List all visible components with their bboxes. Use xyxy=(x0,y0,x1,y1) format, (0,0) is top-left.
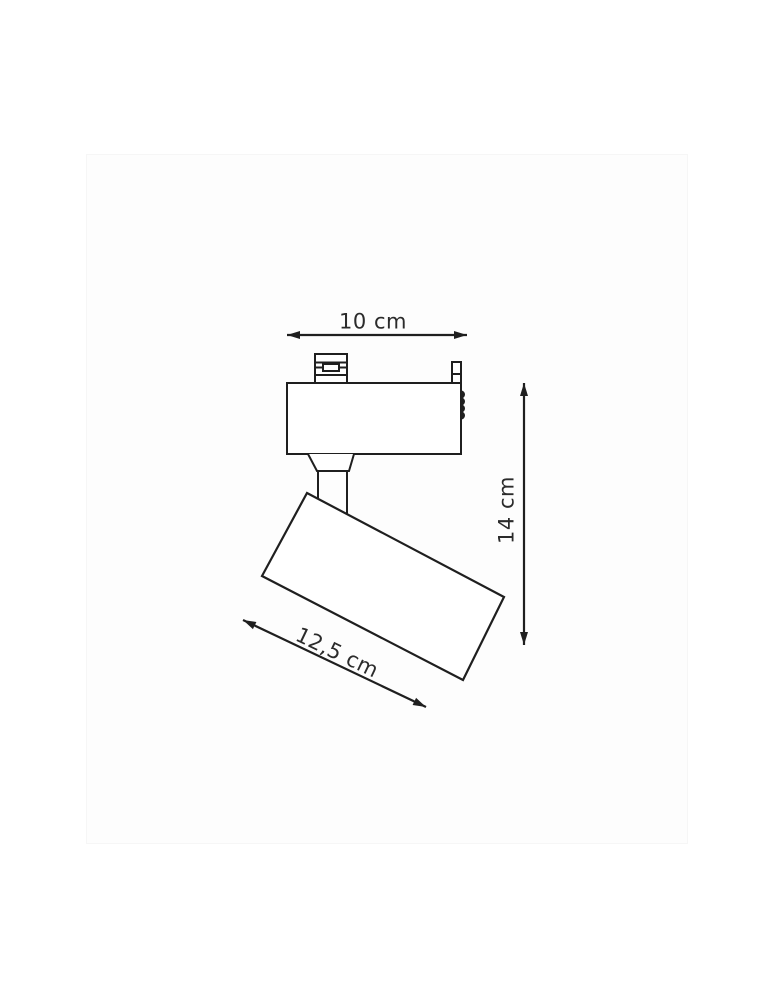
adjustment-ridges xyxy=(461,391,465,419)
width-dimension-label: 10 cm xyxy=(339,312,407,333)
spotlight-head xyxy=(262,493,504,680)
connector-slot xyxy=(323,364,339,371)
fixture-line-drawing xyxy=(0,0,774,1000)
track-adapter-body xyxy=(287,383,461,454)
track-connector xyxy=(315,354,347,383)
product-dimension-diagram: 10 cm 14 cm 12,5 cm xyxy=(0,0,774,1000)
height-dimension-label: 14 cm xyxy=(497,476,518,544)
power-tab xyxy=(452,362,461,383)
